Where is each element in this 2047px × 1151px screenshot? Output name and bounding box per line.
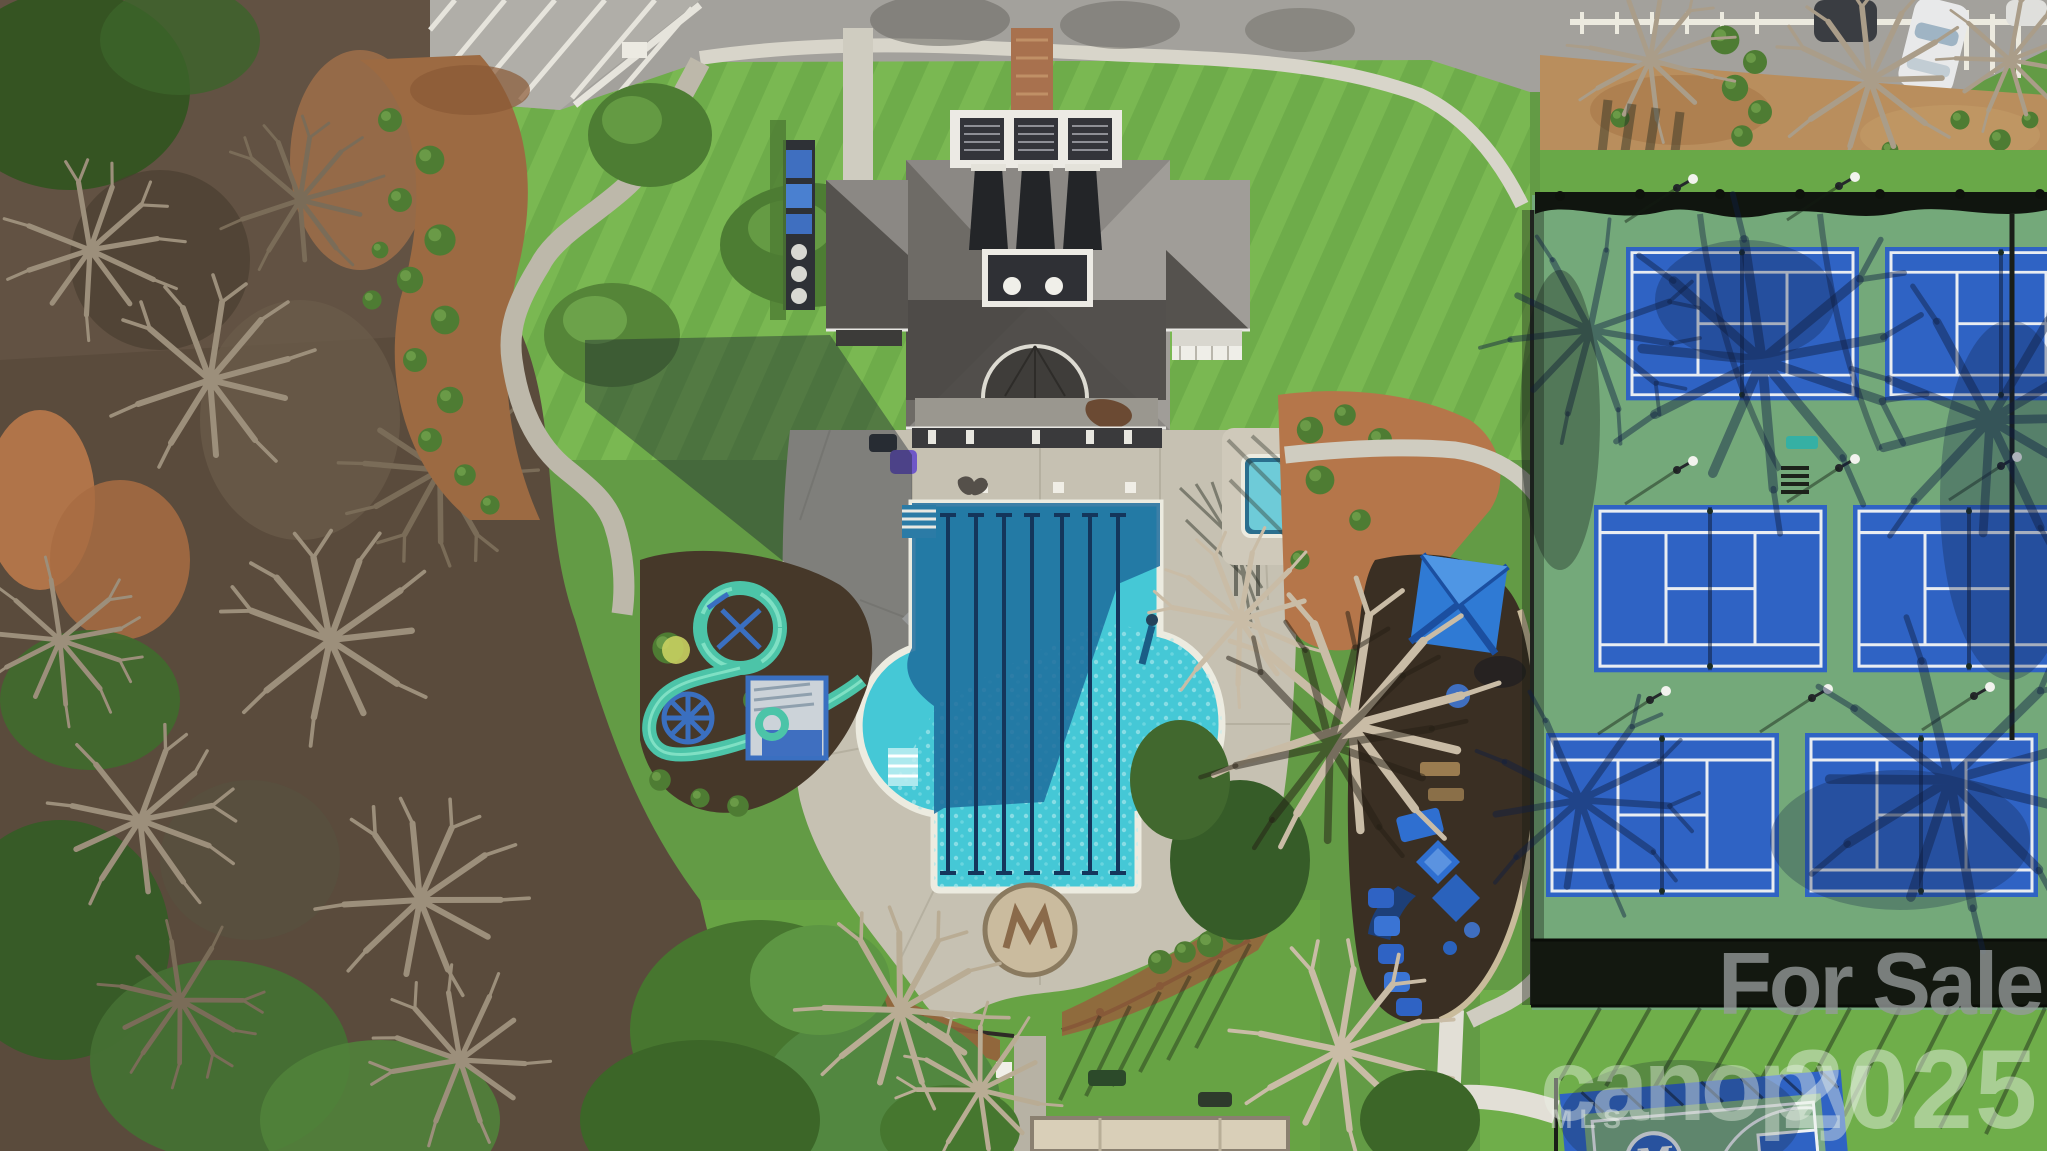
lawn-bench (1088, 1070, 1126, 1086)
entry-walk (843, 28, 873, 188)
pool-steps-west (888, 748, 918, 786)
mls-watermark-sub: MLS (1550, 1106, 1628, 1133)
stacked-pool-furniture (783, 140, 815, 310)
grass-strip (1540, 150, 2047, 198)
slide-support-wheel (664, 694, 712, 742)
playground-bench (1420, 762, 1460, 776)
tennis-complex (1454, 172, 2047, 1010)
pool-stairs-north (902, 505, 936, 538)
year-watermark: 2025 (1782, 1034, 2039, 1146)
courtside-bench (1786, 436, 1818, 449)
aerial-photo: M For Sale canopy MLS 2025 (0, 0, 2047, 1151)
for-sale-watermark: For Sale (1718, 940, 2041, 1028)
gravel-court (1032, 1118, 1288, 1151)
swimmer (1146, 614, 1158, 626)
black-chimneys (969, 168, 1102, 250)
lawn-bench (1198, 1092, 1232, 1107)
roof-balcony (985, 252, 1090, 304)
slide-platform (748, 678, 826, 758)
pebble-medallion (985, 885, 1075, 975)
